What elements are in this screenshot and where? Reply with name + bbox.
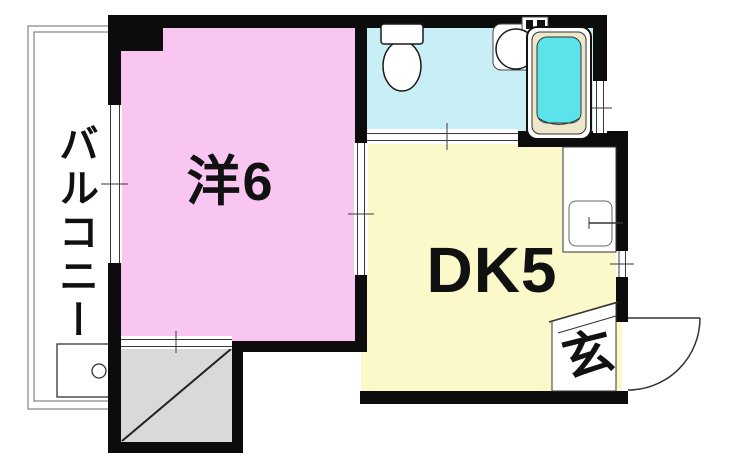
shaft-area (121, 347, 232, 443)
toilet-icon (381, 24, 423, 91)
western-room-floor (110, 20, 367, 350)
floorplan-canvas: 洋6 DK5 バルコニー 玄 (0, 0, 734, 469)
bathtub-icon (527, 27, 591, 139)
kitchen-sink-icon (563, 147, 623, 252)
entrance-door-swing (628, 318, 700, 390)
washing-machine-pan-icon (57, 344, 114, 397)
floorplan-drawing (0, 0, 734, 469)
